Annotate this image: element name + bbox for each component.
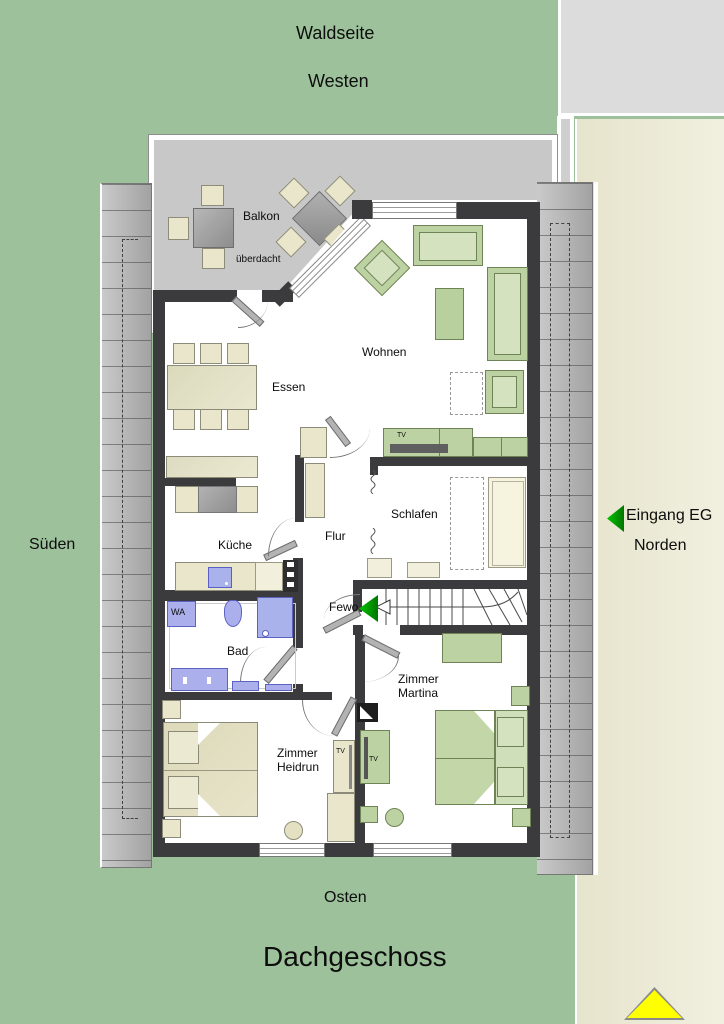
sofa-top <box>413 225 483 266</box>
label-fewo: Fewo <box>329 600 358 614</box>
pillow <box>497 717 524 747</box>
tv-screen <box>364 737 368 779</box>
bed-middle-line <box>436 758 494 759</box>
wall-stairs-south-a <box>353 625 363 635</box>
stool-round <box>284 821 303 840</box>
footstool-dashed <box>450 372 483 415</box>
chimney-flue <box>360 706 373 719</box>
kitchen-counter-end <box>255 562 283 591</box>
roof-ridge-connector-fill <box>561 119 570 183</box>
pillow <box>168 776 199 809</box>
tv-label: TV <box>369 756 378 763</box>
bedroom-dresser <box>407 562 440 578</box>
staircase <box>362 589 527 625</box>
dining-chair <box>227 409 249 430</box>
wall-stairs-north <box>353 580 540 589</box>
wall-north-living-left <box>358 202 372 219</box>
wall-south-a <box>153 843 259 857</box>
wall-east <box>527 202 540 855</box>
bath-sink <box>232 681 259 691</box>
blanket-fold <box>474 711 494 733</box>
kitchen-stove <box>198 486 237 513</box>
window-south-martina <box>373 843 452 857</box>
label-room-martina-l1: Zimmer <box>398 672 439 686</box>
hall-cabinet <box>300 427 327 458</box>
bed-single <box>488 477 526 568</box>
pillow <box>497 767 524 797</box>
kitchen-sink <box>208 567 232 588</box>
roof-overhang-right <box>537 182 593 875</box>
sideboard-divider <box>501 438 502 456</box>
label-room-heidrun-l2: Heidrun <box>277 760 319 774</box>
blanket-fold <box>198 723 220 745</box>
label-east: Osten <box>324 889 367 907</box>
nightstand <box>512 808 531 827</box>
nightstand <box>511 686 530 706</box>
kitchen-shelf-slots <box>287 562 294 590</box>
label-south: Süden <box>29 536 75 554</box>
tv-label: TV <box>397 432 406 439</box>
armchair-low <box>485 370 524 414</box>
label-entrance: Eingang EG <box>626 507 712 525</box>
balcony-chair <box>202 248 225 269</box>
armchair-seat <box>492 376 517 408</box>
label-bath: Bad <box>227 644 248 658</box>
sink-drain <box>225 582 228 585</box>
nightstand <box>162 819 181 838</box>
washing-machine-label: WA <box>171 607 185 617</box>
armchair-seat <box>364 250 401 287</box>
nightstand <box>162 700 181 719</box>
kitchen-shelf-unit <box>283 560 298 592</box>
label-hall: Flur <box>325 529 346 543</box>
label-room-heidrun: Zimmer Heidrun <box>277 746 319 774</box>
neighbor-roof-block <box>558 0 724 116</box>
stool-square <box>360 806 378 823</box>
label-living: Wohnen <box>362 345 406 359</box>
hall-wardrobe <box>305 463 325 518</box>
tv-screen <box>390 444 448 453</box>
sofa-right <box>487 267 528 361</box>
wall-hall-heidrun <box>302 692 332 700</box>
toilet <box>224 600 242 627</box>
radiator-icon <box>368 528 378 554</box>
dining-chair <box>200 343 222 364</box>
wall-hall-west-upper <box>295 455 304 522</box>
label-west: Westen <box>308 71 369 92</box>
label-north: Norden <box>634 537 686 555</box>
label-room-martina-l2: Martina <box>398 686 439 700</box>
label-balcony: Balkon <box>243 209 280 223</box>
bed-middle-line <box>164 770 257 771</box>
roof-overhang-left <box>100 183 152 868</box>
roof-dashed-line <box>122 239 138 819</box>
bath-sink-small <box>265 684 292 691</box>
wall-south-c <box>452 843 540 857</box>
balcony-table <box>193 208 234 248</box>
floor-plan: TV WA TV <box>0 0 724 1024</box>
tv-label: TV <box>336 748 345 755</box>
roof-overhang-right-edge <box>594 182 598 875</box>
window-south-heidrun <box>259 843 325 857</box>
pillow <box>168 731 199 764</box>
bed-martina <box>435 710 495 805</box>
label-kitchen: Küche <box>218 538 252 552</box>
balcony-chair <box>201 185 224 206</box>
label-bedroom: Schlafen <box>391 507 438 521</box>
bathtub <box>171 668 228 691</box>
radiator-icon <box>368 470 378 494</box>
dining-chair <box>173 409 195 430</box>
wall-north-dining <box>153 290 237 302</box>
bed-dashed-outline <box>450 477 484 570</box>
shower <box>257 597 293 638</box>
label-title: Dachgeschoss <box>263 941 447 973</box>
bed-inner-line <box>492 481 524 566</box>
label-balcony-note: überdacht <box>236 254 280 265</box>
kitchen-sideboard <box>166 456 258 478</box>
tv-screen <box>349 745 352 789</box>
tv-sideboard-ext <box>473 437 528 457</box>
wardrobe-martina <box>442 633 502 663</box>
window-north-living <box>372 202 457 219</box>
chimney <box>357 703 378 722</box>
label-room-heidrun-l1: Zimmer <box>277 746 319 760</box>
dining-chair <box>200 409 222 430</box>
balcony-chair <box>168 217 189 240</box>
sofa-seat <box>494 273 521 355</box>
blanket-fold <box>198 794 220 816</box>
roof-dashed-line <box>550 223 570 838</box>
dining-chair <box>227 343 249 364</box>
stool-round <box>385 808 404 827</box>
coffee-table <box>435 288 464 340</box>
wall-dining-kitchen <box>165 478 236 486</box>
dining-chair <box>173 343 195 364</box>
tub-handle <box>183 677 187 684</box>
dining-table <box>167 365 257 410</box>
wardrobe-heidrun <box>327 793 355 842</box>
wall-bath-heidrun <box>165 692 302 700</box>
shower-drain <box>262 630 269 637</box>
sofa-seat <box>419 232 477 261</box>
label-forest-side: Waldseite <box>296 23 374 44</box>
wall-living-south <box>372 457 540 466</box>
wall-south-b <box>325 843 373 857</box>
label-dining: Essen <box>272 380 305 394</box>
bedroom-dresser <box>367 558 392 578</box>
label-room-martina: Zimmer Martina <box>398 672 439 700</box>
blanket-fold <box>474 782 494 804</box>
bed-heidrun <box>163 722 258 817</box>
tub-handle <box>207 677 211 684</box>
staircase-drawing <box>362 589 527 625</box>
